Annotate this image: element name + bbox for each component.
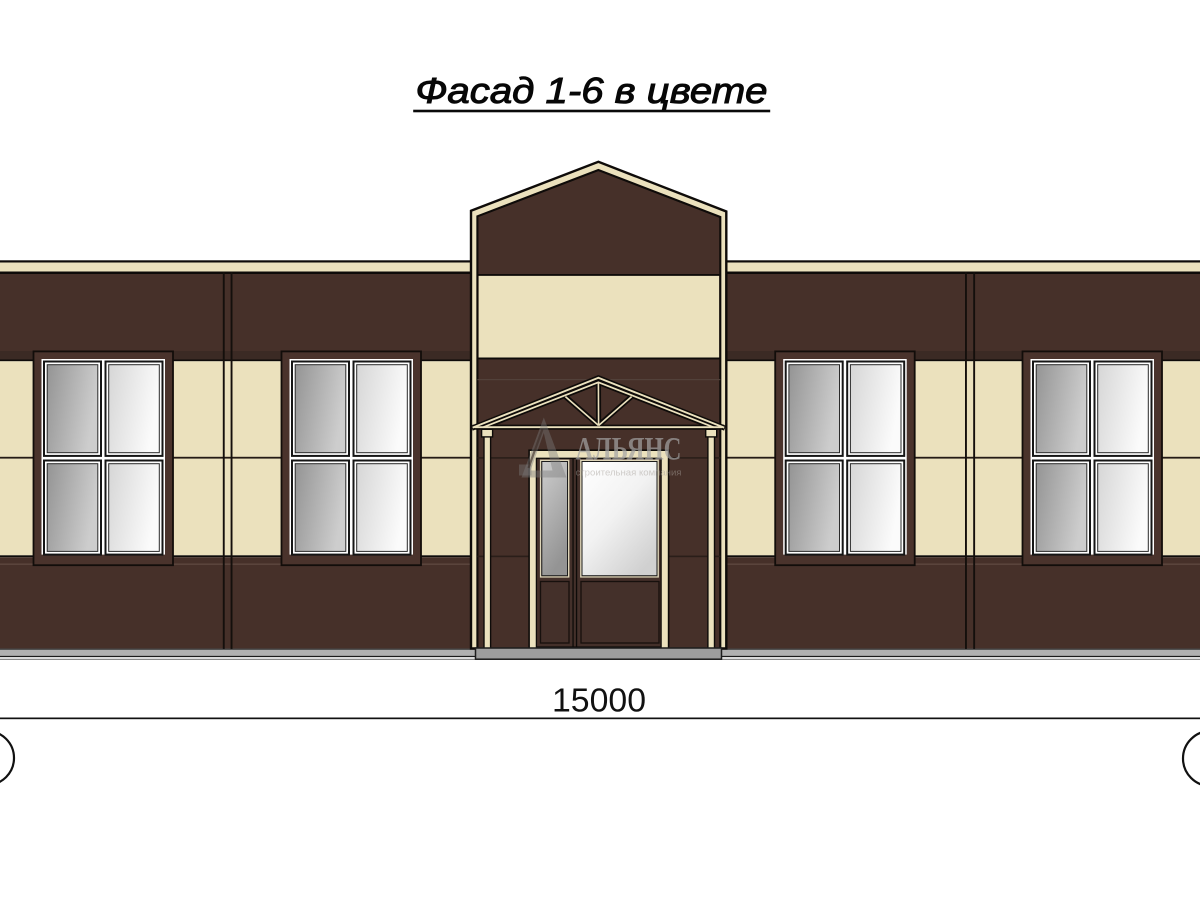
svg-text:15000: 15000 <box>552 682 646 719</box>
svg-text:АЛЬЯНС: АЛЬЯНС <box>576 432 682 468</box>
svg-text:строительная компания: строительная компания <box>576 468 682 479</box>
svg-text:Фасад 1-6 в цвете: Фасад 1-6 в цвете <box>416 70 768 111</box>
